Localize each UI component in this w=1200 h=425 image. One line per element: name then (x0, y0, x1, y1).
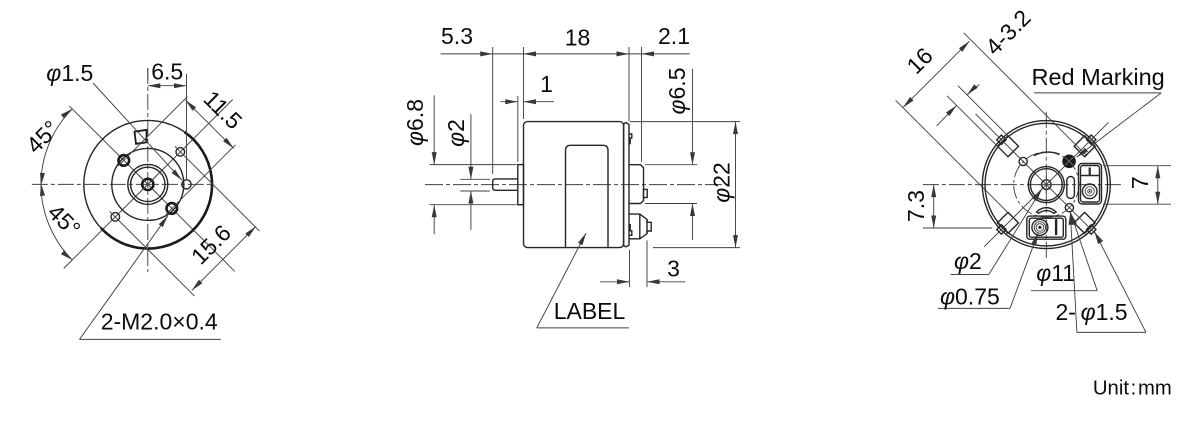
svg-text:φ11: φ11 (1036, 260, 1075, 286)
svg-text:LABEL: LABEL (554, 298, 626, 324)
svg-text:φ6.8: φ6.8 (402, 99, 428, 146)
svg-text:2-M2.0×0.4: 2-M2.0×0.4 (101, 309, 218, 335)
svg-text:φ22: φ22 (709, 162, 735, 203)
svg-text:7.3: 7.3 (903, 190, 929, 222)
svg-text:7: 7 (1127, 176, 1153, 189)
svg-text:φ0.75: φ0.75 (940, 284, 1000, 310)
svg-text:18: 18 (565, 24, 591, 50)
svg-text:2- φ1.5: 2- φ1.5 (1056, 299, 1128, 325)
svg-text:Unit : mm: Unit : mm (1093, 377, 1172, 399)
svg-text:φ1.5: φ1.5 (46, 60, 93, 86)
svg-text:5.3: 5.3 (441, 23, 473, 49)
svg-text:Red Marking: Red Marking (1032, 64, 1165, 90)
svg-text:1: 1 (540, 71, 553, 97)
svg-text:6.5: 6.5 (151, 58, 183, 84)
svg-text:2.1: 2.1 (658, 23, 690, 49)
svg-text:3: 3 (667, 256, 680, 282)
svg-text:φ2: φ2 (954, 248, 982, 274)
svg-text:φ6.5: φ6.5 (664, 68, 690, 115)
svg-text:φ2: φ2 (443, 119, 469, 147)
